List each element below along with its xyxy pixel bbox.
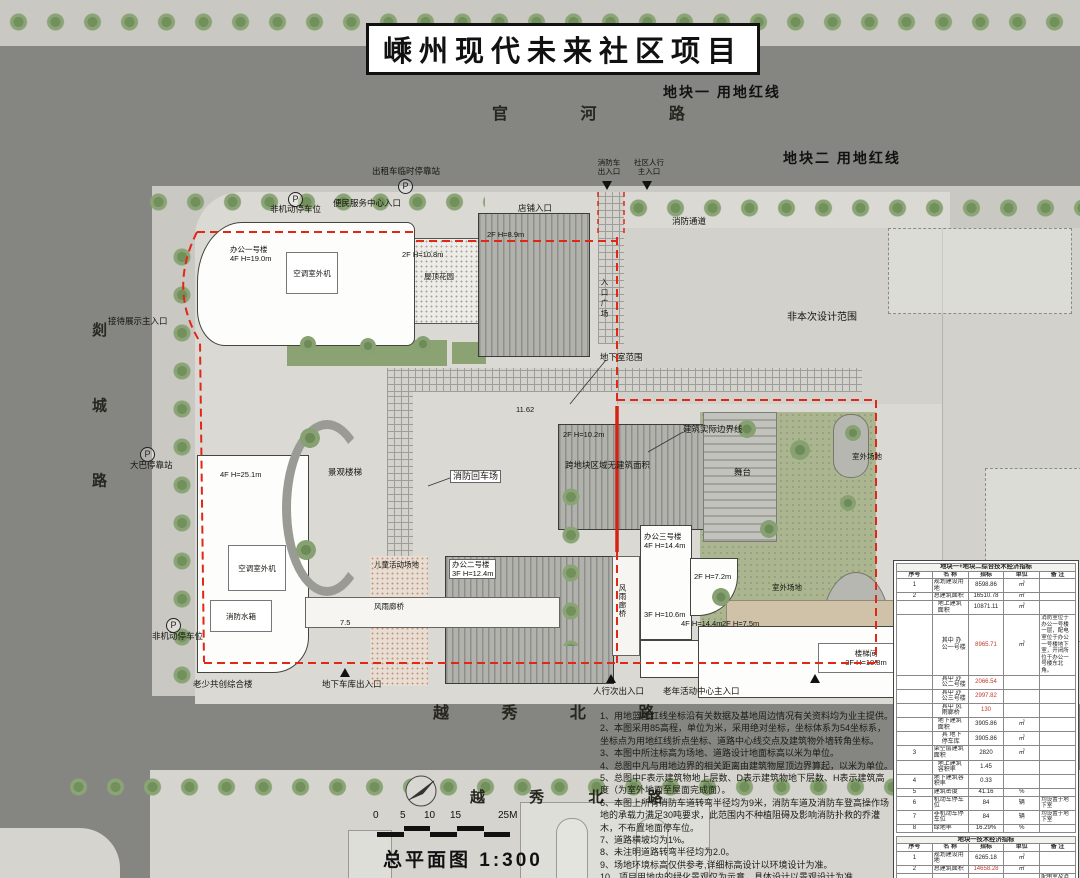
arch-outline bbox=[556, 818, 588, 878]
office2-label: 办公二号楼3F H=12.4m bbox=[449, 559, 496, 579]
parking-icon: P bbox=[288, 192, 303, 207]
ac-unit-label: 空调室外机 bbox=[293, 269, 331, 278]
tree-icon bbox=[296, 540, 316, 560]
height-label: 2F H=7.2m bbox=[694, 572, 731, 581]
garage-entrance-label: 地下车库出入口 bbox=[322, 679, 382, 689]
indicator-table-2: 地块一技术经济指标序号名 称指标单位备 注1规划建设用地6265.18㎡2总建筑… bbox=[896, 836, 1076, 878]
parking-icon: P bbox=[398, 179, 413, 194]
elder-complex-label: 老少共创综合楼 bbox=[193, 679, 253, 689]
outdoor-site-label: 室外场地 bbox=[772, 583, 802, 592]
note-line-3: 3、本图中所注标高为场地、道路设计地面标高以米为单位。 bbox=[600, 747, 893, 759]
outdoor-site-label: 室外场地 bbox=[852, 452, 882, 461]
reception-entrance-label: 接待展示主入口 bbox=[108, 316, 168, 326]
scale-bar-segment bbox=[484, 832, 510, 837]
nonmotor-parking-left-label: 非机动停车位 bbox=[152, 631, 203, 641]
height-label: 4F H=25.1m bbox=[220, 470, 261, 479]
service-center-entrance-label: 便民服务中心入口 bbox=[333, 198, 401, 208]
stairwell-label: 楼梯间 bbox=[855, 649, 878, 658]
height-label: 2F H=8.9m bbox=[487, 230, 524, 239]
office1-label: 办公一号楼4F H=19.0m bbox=[230, 245, 271, 263]
scale-tick: 15 bbox=[450, 810, 461, 821]
note-line-7: 7、道路横坡均为1%。 bbox=[600, 834, 893, 846]
stairwell-height-label: 3F H=10.8m bbox=[845, 658, 886, 667]
path-loop bbox=[833, 414, 869, 478]
drawing-title: 嵊州现代未来社区项目 bbox=[366, 23, 760, 75]
tree-icon bbox=[300, 336, 316, 352]
indicator-table-1: 地块一+地块二综合技术经济指标序号名 称指标单位备 注1规划建设用地8598.8… bbox=[896, 563, 1076, 833]
entry-plaza-label: 入口广场 bbox=[600, 278, 609, 320]
fire-tank-label: 消防水箱 bbox=[226, 612, 256, 621]
tree-icon bbox=[760, 520, 778, 538]
fire-lane-label: 消防通道 bbox=[672, 216, 706, 226]
plot2-redline-label: 地块二 用地红线 bbox=[783, 148, 901, 168]
kids-area-label: 儿童活动场地 bbox=[374, 560, 419, 569]
road-name-shancheng: 剡 城 路 bbox=[88, 322, 109, 515]
roof-garden-label: 屋顶花园 bbox=[424, 272, 454, 281]
crossplot-label: 跨地块区域无建筑面积 bbox=[565, 460, 650, 470]
scale-tick: 10 bbox=[424, 810, 435, 821]
dimension-label: 7.5 bbox=[340, 618, 350, 627]
entrance-arrow-icon bbox=[606, 674, 616, 683]
height-label: 2F H=10.2m bbox=[563, 430, 604, 439]
basement-range-label: 地下室范围 bbox=[600, 352, 643, 362]
landscape-stairs-arc bbox=[282, 420, 372, 596]
fire-tank-box: 消防水箱 bbox=[210, 600, 272, 632]
note-line-4: 4、总图中凡与用地边界的相关距离由建筑物屋顶边界算起，以米为单位。 bbox=[600, 760, 893, 772]
plot1-redline-label: 地块一 用地红线 bbox=[663, 82, 781, 102]
scale-tick: 0 bbox=[373, 810, 379, 821]
fire-lane-grid bbox=[387, 392, 413, 558]
drawing-caption: 总平面图 1:300 bbox=[383, 845, 543, 872]
note-line-5: 5、总图中F表示建筑物地上层数、D表示建筑物地下层数、H表示建筑高度（为室外地面… bbox=[600, 772, 893, 797]
entrance-arrow-icon bbox=[602, 181, 612, 190]
fire-turnaround-label: 消防回车场 bbox=[450, 470, 501, 483]
shop-entrance-label: 店铺入口 bbox=[518, 203, 552, 213]
dimension-label: 11.62 bbox=[516, 405, 534, 414]
note-line-1: 1、用地蓝图红线坐标沿有关数据及基地周边情况有关资料均为业主提供。 bbox=[600, 710, 893, 722]
note-line-6: 6、本图上所有消防车道转弯半径均为9米，消防车道及消防车登高操作场地的承载力满足… bbox=[600, 797, 893, 834]
parking-icon: P bbox=[166, 618, 181, 633]
height-label: 2F H=7.5m bbox=[722, 619, 759, 628]
tree-column-icon bbox=[558, 478, 584, 646]
site-plan-drawing: 空调室外机 空调室外机 消防水箱 楼梯间 3F H=10.8m bbox=[0, 0, 1080, 878]
note-line-10: 10、项目用地内的绿化景观仅为示意，具体设计以景观设计为准。 bbox=[600, 871, 893, 878]
height-label: 3F H=10.6m bbox=[644, 610, 685, 619]
actual-boundary-label: 建筑实际边界线 bbox=[683, 424, 743, 434]
corridor-label-vertical: 风雨廊桥 bbox=[618, 584, 627, 618]
tree-icon bbox=[415, 336, 431, 352]
scale-tick: 25M bbox=[498, 810, 517, 821]
scale-bar-segment bbox=[377, 832, 404, 837]
parking-icon: P bbox=[140, 447, 155, 462]
fire-truck-entrance-label: 消防车出入口 bbox=[596, 158, 622, 176]
fire-lane-grid bbox=[387, 368, 862, 392]
tree-icon bbox=[845, 425, 861, 441]
ac-unit-box: 空调室外机 bbox=[228, 545, 286, 591]
note-line-9: 9、场地环境标高仅供参考,详细标高设计以环境设计为准。 bbox=[600, 859, 893, 871]
ped-main-entrance-label: 社区人行主入口 bbox=[632, 158, 666, 176]
not-in-scope-label: 非本次设计范围 bbox=[787, 312, 857, 324]
tree-row-icon bbox=[140, 184, 485, 220]
scale-bar-segment bbox=[457, 826, 484, 831]
height-label: 2F H=10.8m bbox=[402, 250, 443, 259]
note-line-8: 8、未注明道路转弯半径均为2.0。 bbox=[600, 846, 893, 858]
existing-building-outline bbox=[888, 228, 1072, 314]
stage-label: 舞台 bbox=[734, 467, 751, 477]
office-3-annex bbox=[640, 640, 700, 678]
tree-icon bbox=[712, 588, 730, 606]
entrance-arrow-icon bbox=[810, 674, 820, 683]
scale-bar-segment bbox=[430, 832, 457, 837]
bus-stop-label: 大巴停靠站 bbox=[130, 460, 173, 470]
road-name-guanhe: 官 河 路 bbox=[492, 100, 719, 124]
corridor-label: 风雨廊桥 bbox=[374, 602, 404, 611]
entrance-arrow-icon bbox=[642, 181, 652, 190]
tree-icon bbox=[300, 428, 320, 448]
height-label: 4F H=14.4m bbox=[681, 619, 722, 628]
ac-unit-label: 空调室外机 bbox=[238, 564, 276, 573]
tree-icon bbox=[840, 495, 856, 511]
ped-secondary-entrance-label: 人行次出入口 bbox=[593, 686, 644, 696]
tree-icon bbox=[790, 440, 810, 460]
scale-tick: 5 bbox=[400, 810, 406, 821]
landscape-stairs-label: 景观楼梯 bbox=[328, 467, 362, 477]
entrance-arrow-icon bbox=[340, 668, 350, 677]
taxi-stop-label: 出租车临时停靠站 bbox=[372, 166, 440, 176]
office3-label: 办公三号楼4F H=14.4m bbox=[644, 532, 685, 550]
elder-entrance-label: 老年活动中心主入口 bbox=[663, 686, 740, 696]
ac-unit-box: 空调室外机 bbox=[286, 252, 338, 294]
tree-icon bbox=[360, 338, 376, 354]
indicator-tables-panel: 地块一+地块二综合技术经济指标序号名 称指标单位备 注1规划建设用地8598.8… bbox=[893, 560, 1079, 878]
corner-block bbox=[0, 828, 120, 878]
note-line-2: 2、本图采用85高程，单位为米，采用绝对坐标，坐标体系为54坐标系，坐标点为用地… bbox=[600, 722, 893, 747]
scale-bar-segment bbox=[404, 826, 430, 831]
notes-block: 1、用地蓝图红线坐标沿有关数据及基地周边情况有关资料均为业主提供。2、本图采用8… bbox=[600, 710, 893, 878]
